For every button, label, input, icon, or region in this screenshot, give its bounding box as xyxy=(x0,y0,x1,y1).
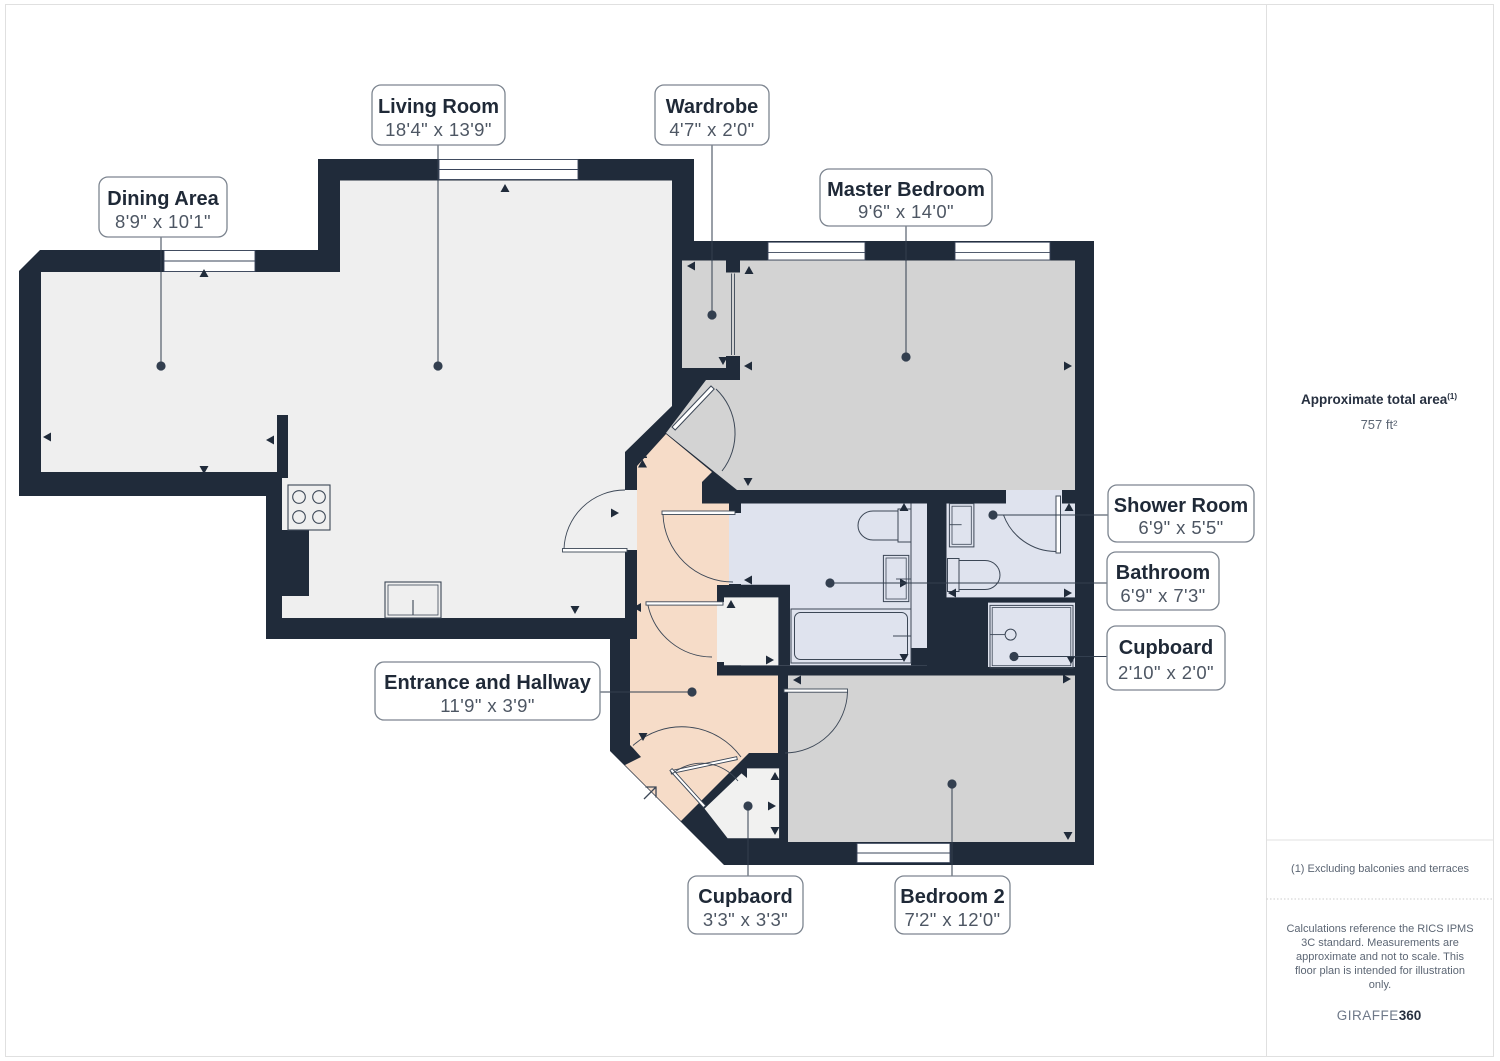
svg-text:Master Bedroom: Master Bedroom xyxy=(827,179,985,201)
svg-text:Cupbaord: Cupbaord xyxy=(698,886,792,908)
svg-text:Cupboard: Cupboard xyxy=(1119,637,1213,659)
svg-text:8'9" x 10'1": 8'9" x 10'1" xyxy=(115,211,211,232)
svg-text:3C standard. Measurements are: 3C standard. Measurements are xyxy=(1301,937,1459,949)
svg-text:GIRAFFE360: GIRAFFE360 xyxy=(1337,1008,1422,1023)
svg-text:757 ft²: 757 ft² xyxy=(1361,417,1399,432)
svg-text:6'9" x 5'5": 6'9" x 5'5" xyxy=(1138,517,1223,538)
svg-text:only.: only. xyxy=(1369,979,1391,991)
svg-text:Bathroom: Bathroom xyxy=(1116,562,1210,584)
svg-text:(1) Excluding balconies and te: (1) Excluding balconies and terraces xyxy=(1291,863,1469,875)
svg-text:Living Room: Living Room xyxy=(378,96,499,118)
svg-text:floor plan is intended for ill: floor plan is intended for illustration xyxy=(1295,965,1465,977)
svg-text:4'7" x 2'0": 4'7" x 2'0" xyxy=(669,119,754,140)
svg-text:approximate and not to scale.: approximate and not to scale. This xyxy=(1296,951,1464,963)
svg-text:18'4" x 13'9": 18'4" x 13'9" xyxy=(385,119,492,140)
svg-text:Bedroom 2: Bedroom 2 xyxy=(900,886,1004,908)
svg-text:Shower Room: Shower Room xyxy=(1114,495,1248,517)
svg-text:Wardrobe: Wardrobe xyxy=(666,96,759,118)
svg-text:Calculations reference the RIC: Calculations reference the RICS IPMS xyxy=(1286,923,1473,935)
svg-text:11'9" x 3'9": 11'9" x 3'9" xyxy=(440,695,535,716)
svg-text:7'2" x 12'0": 7'2" x 12'0" xyxy=(905,909,1001,930)
svg-text:3'3" x 3'3": 3'3" x 3'3" xyxy=(703,909,788,930)
svg-text:Approximate total area(1): Approximate total area(1) xyxy=(1301,392,1457,407)
svg-text:Entrance and Hallway: Entrance and Hallway xyxy=(384,672,592,694)
svg-text:Dining Area: Dining Area xyxy=(107,188,219,210)
svg-text:6'9" x 7'3": 6'9" x 7'3" xyxy=(1120,585,1205,606)
svg-text:9'6" x 14'0": 9'6" x 14'0" xyxy=(858,201,954,222)
svg-text:2'10" x 2'0": 2'10" x 2'0" xyxy=(1118,662,1214,683)
